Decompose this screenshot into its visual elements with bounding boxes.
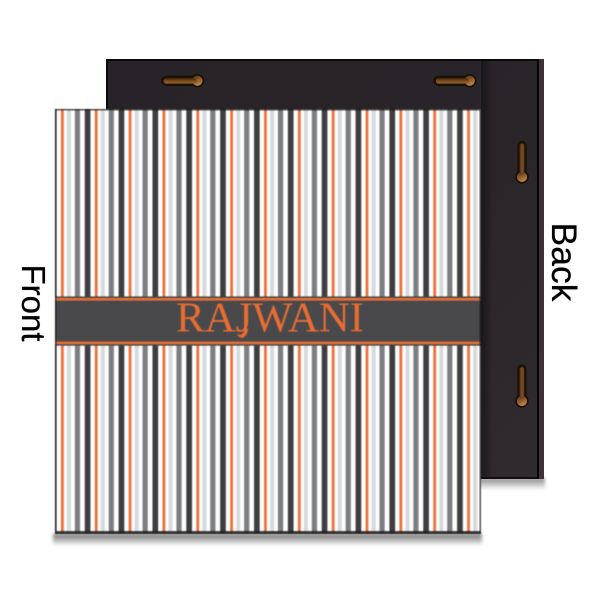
- svg-text:RAJWANI: RAJWANI: [176, 295, 364, 342]
